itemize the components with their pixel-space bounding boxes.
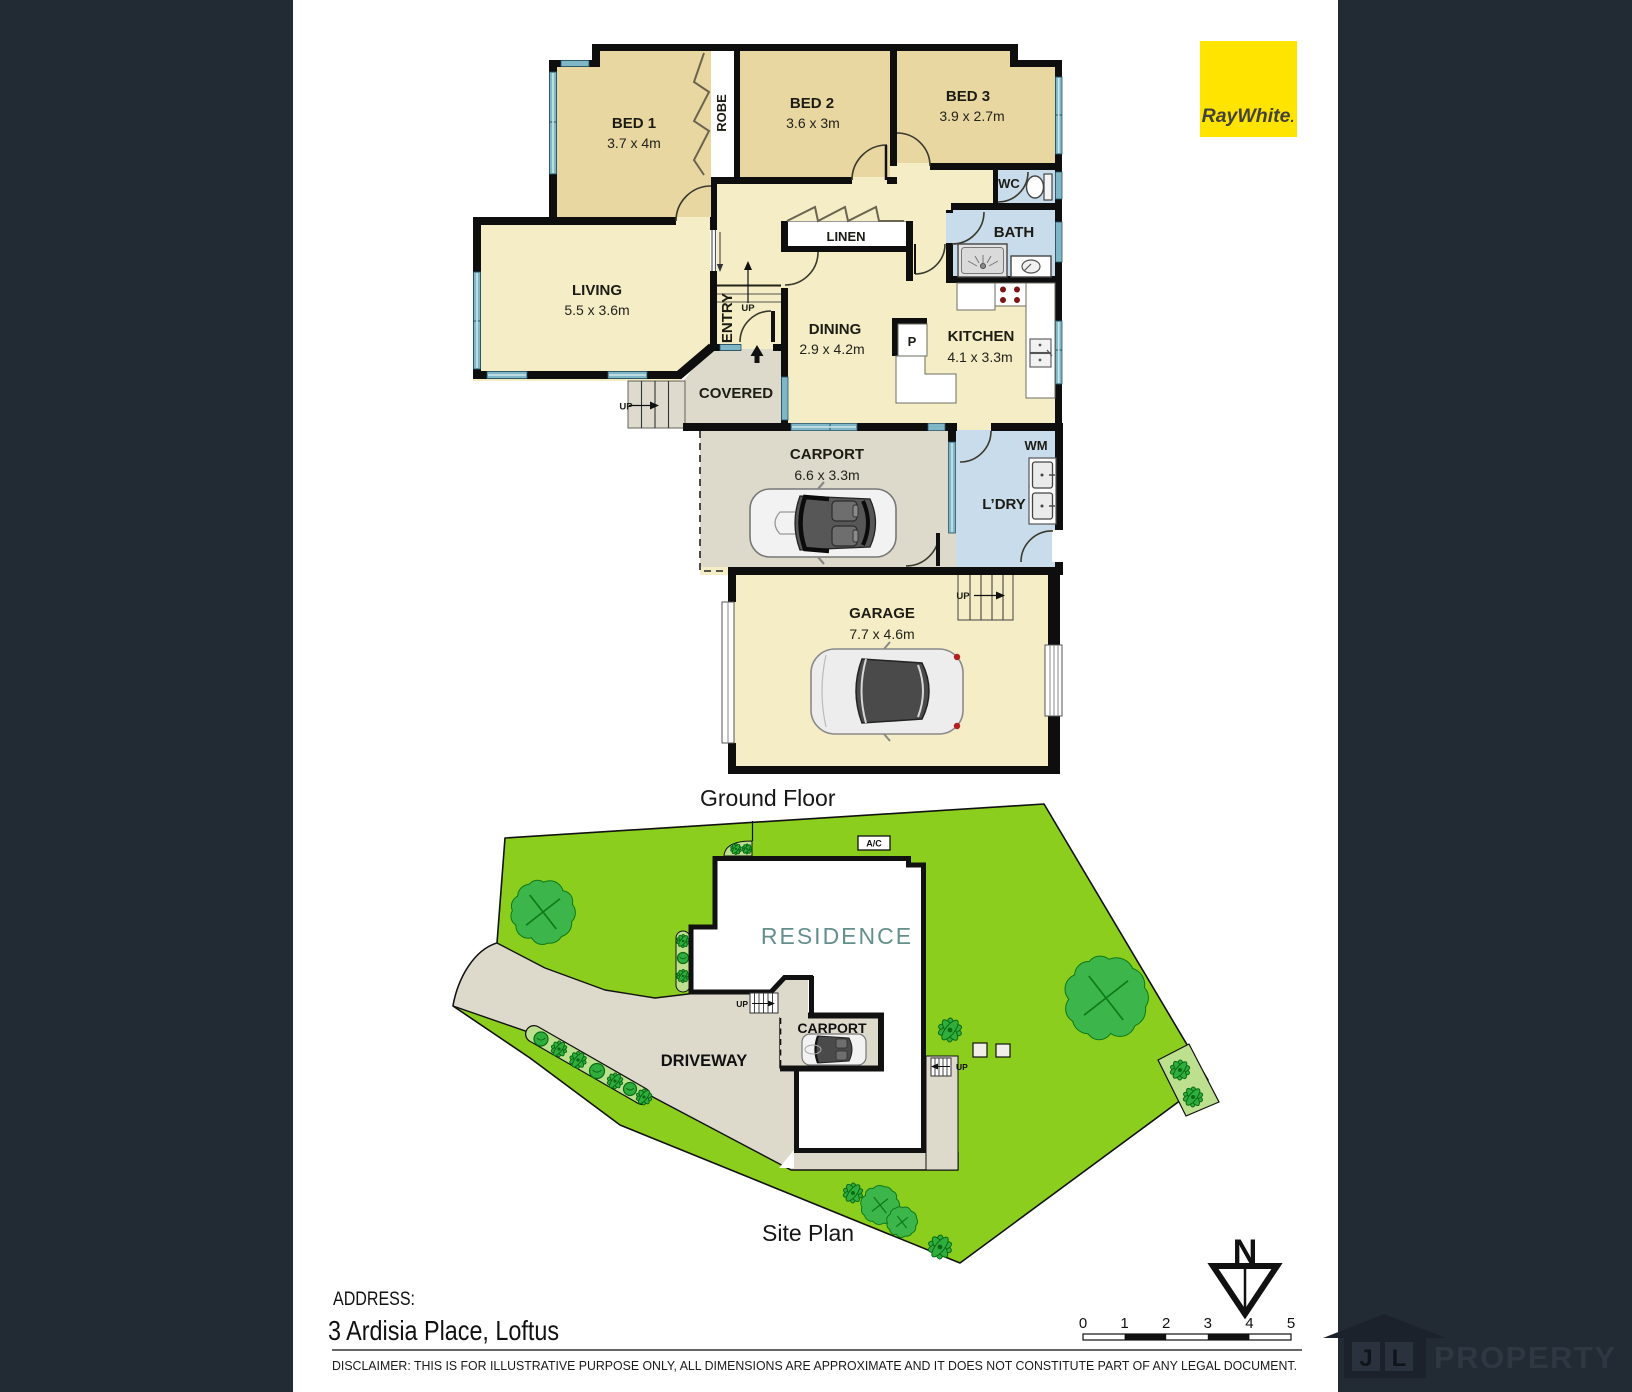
svg-text:1: 1 (1120, 1315, 1128, 1332)
svg-text:ADDRESS:: ADDRESS: (333, 1289, 415, 1310)
svg-text:RESIDENCE: RESIDENCE (761, 923, 913, 949)
svg-text:UP: UP (956, 1062, 968, 1072)
svg-text:P: P (908, 334, 917, 349)
svg-text:WM: WM (1024, 438, 1047, 453)
svg-text:3.7 x 4m: 3.7 x 4m (607, 135, 661, 151)
svg-text:Site Plan: Site Plan (762, 1220, 854, 1246)
svg-text:DINING: DINING (809, 321, 862, 338)
svg-text:UP: UP (741, 303, 755, 314)
svg-text:LIVING: LIVING (572, 282, 622, 299)
svg-text:LINEN: LINEN (827, 229, 866, 244)
svg-text:DISCLAIMER: THIS IS FOR ILLUST: DISCLAIMER: THIS IS FOR ILLUSTRATIVE PUR… (332, 1358, 1297, 1373)
svg-text:4.1 x 3.3m: 4.1 x 3.3m (947, 349, 1012, 365)
svg-text:3.6 x 3m: 3.6 x 3m (786, 115, 840, 131)
svg-text:BED 1: BED 1 (612, 115, 656, 132)
svg-text:KITCHEN: KITCHEN (948, 328, 1015, 345)
svg-text:5: 5 (1287, 1315, 1295, 1332)
svg-text:PROPERTY: PROPERTY (1434, 1340, 1617, 1375)
svg-text:L: L (1392, 1345, 1407, 1372)
svg-text:Ground Floor: Ground Floor (700, 785, 836, 811)
svg-text:CARPORT: CARPORT (790, 446, 864, 463)
svg-text:3 Ardisia Place, Loftus: 3 Ardisia Place, Loftus (328, 1315, 559, 1346)
svg-text:2.9 x 4.2m: 2.9 x 4.2m (799, 341, 864, 357)
svg-text:CARPORT: CARPORT (797, 1020, 867, 1036)
svg-text:COVERED: COVERED (699, 385, 773, 402)
svg-text:UP: UP (619, 402, 633, 413)
svg-text:BED 2: BED 2 (790, 95, 834, 112)
svg-text:J: J (1359, 1345, 1372, 1372)
svg-text:BED 3: BED 3 (946, 88, 990, 105)
svg-text:6.6 x 3.3m: 6.6 x 3.3m (794, 467, 859, 483)
svg-text:2: 2 (1162, 1315, 1170, 1332)
svg-text:ENTRY: ENTRY (719, 293, 736, 343)
svg-text:5.5 x 3.6m: 5.5 x 3.6m (564, 302, 629, 318)
svg-text:GARAGE: GARAGE (849, 605, 915, 622)
svg-text:4: 4 (1245, 1315, 1253, 1332)
svg-text:L’DRY: L’DRY (982, 496, 1026, 513)
svg-text:0: 0 (1079, 1315, 1087, 1332)
svg-text:UP: UP (736, 999, 748, 1009)
svg-text:RayWhite.: RayWhite. (1202, 105, 1295, 127)
svg-text:A/C: A/C (866, 839, 882, 849)
svg-text:3: 3 (1204, 1315, 1212, 1332)
svg-text:DRIVEWAY: DRIVEWAY (661, 1052, 748, 1070)
svg-text:ROBE: ROBE (714, 94, 729, 132)
svg-text:BATH: BATH (994, 224, 1035, 241)
svg-text:7.7 x 4.6m: 7.7 x 4.6m (849, 626, 914, 642)
svg-text:3.9 x 2.7m: 3.9 x 2.7m (939, 108, 1004, 124)
svg-text:WC: WC (998, 176, 1020, 191)
svg-text:UP: UP (956, 591, 970, 602)
